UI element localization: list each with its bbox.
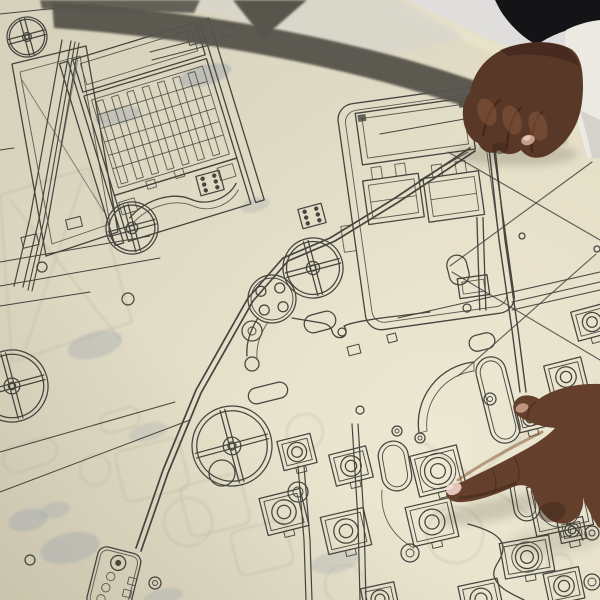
fingertip-shade [492,142,508,154]
screenshot-root: Two hands over a large cream-colored eng… [0,0,600,600]
photo-canvas: Two hands over a large cream-colored eng… [0,0,600,600]
